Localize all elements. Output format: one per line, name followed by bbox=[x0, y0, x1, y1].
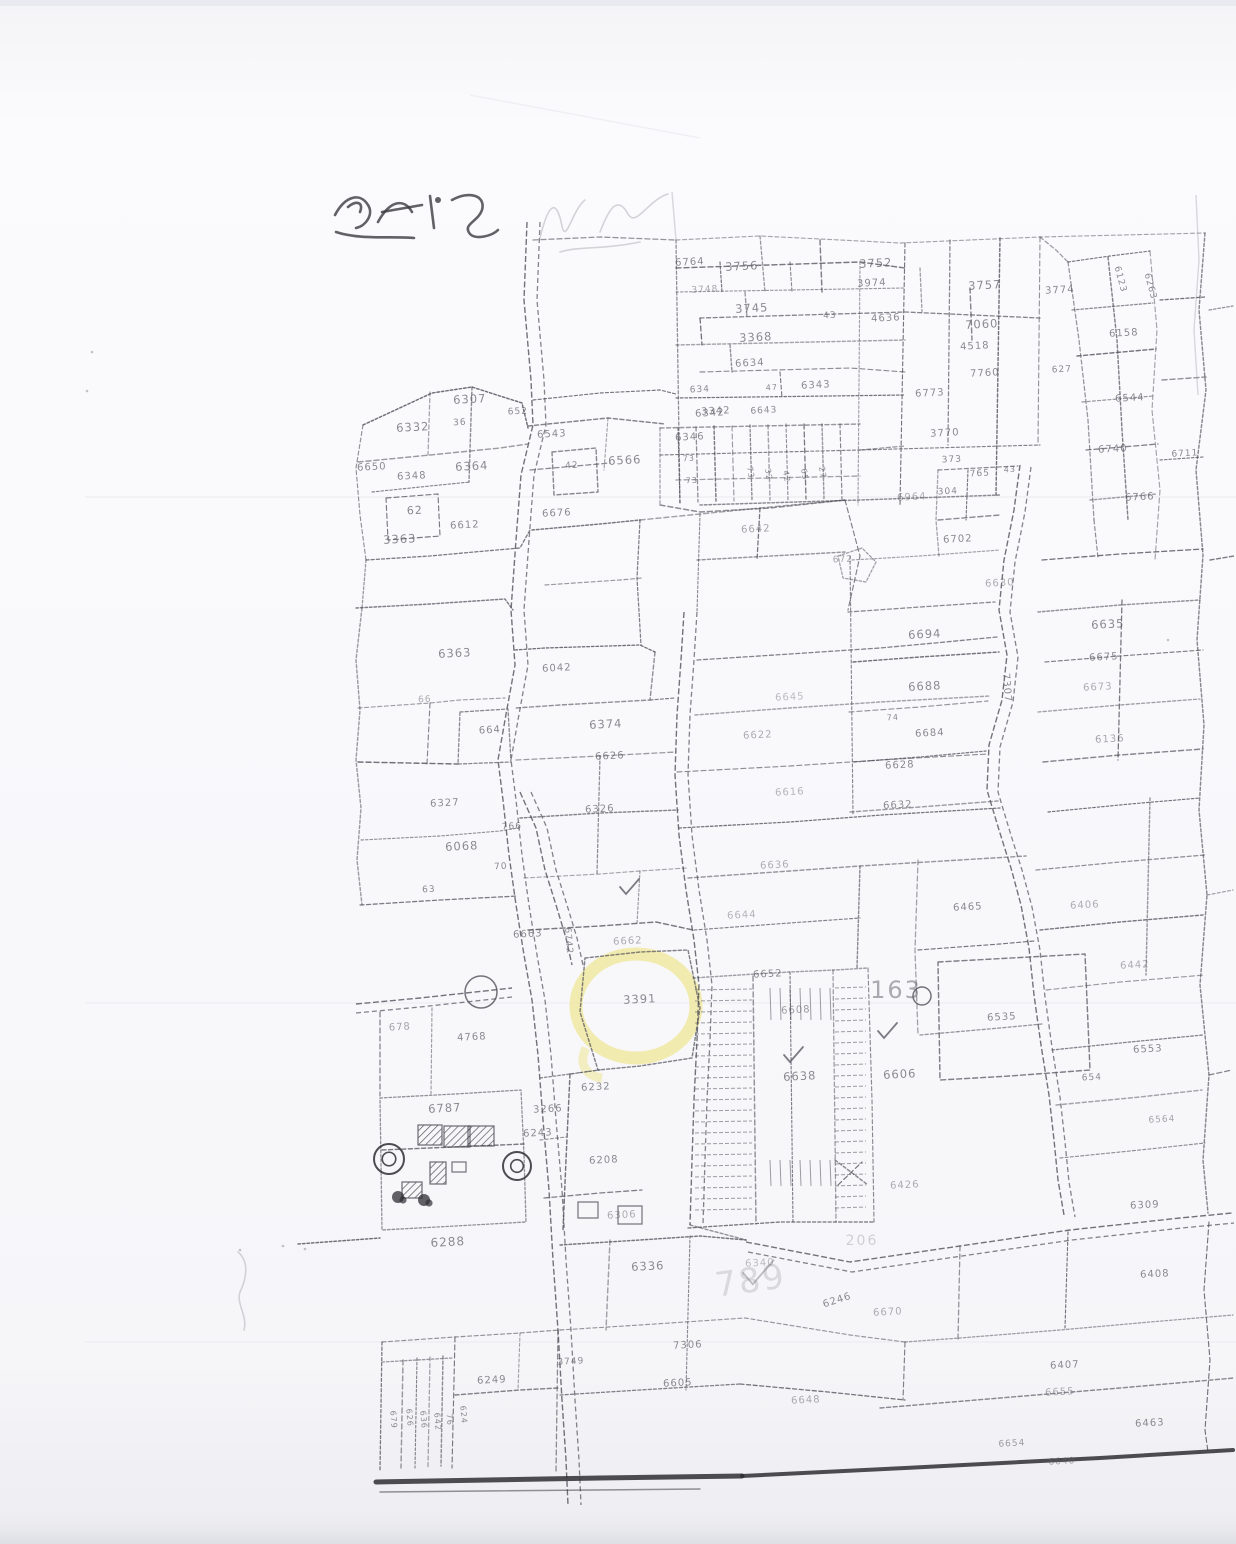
plot-number-label: 6343 bbox=[801, 379, 831, 392]
plot-number-label: 62 bbox=[406, 504, 423, 518]
plot-number-label: 3363 bbox=[383, 531, 417, 547]
plot-number-label: 6606 bbox=[883, 1066, 917, 1082]
plot-number-label: 6332 bbox=[396, 419, 430, 435]
plot-number-label: 6327 bbox=[430, 797, 460, 810]
pencil-number-label: 206 bbox=[846, 1233, 879, 1249]
plot-number-label: 6232 bbox=[581, 1081, 611, 1094]
plot-number-label: 624 bbox=[458, 1405, 469, 1424]
plot-number-label: 36 bbox=[453, 418, 467, 429]
plot-number-label: 6648 bbox=[791, 1394, 821, 1407]
plot-number-label: 654 bbox=[1082, 1072, 1103, 1083]
plot-number-label: 6694 bbox=[908, 626, 942, 642]
plot-number-label: 6208 bbox=[589, 1154, 619, 1167]
plot-number-label: 6673 bbox=[1083, 681, 1113, 694]
plot-number-label: 6442 bbox=[1120, 959, 1150, 972]
hatched-building bbox=[444, 1126, 470, 1147]
plot-number-label: 6535 bbox=[987, 1011, 1017, 1024]
plot-number-label: 6158 bbox=[1109, 327, 1139, 340]
plot-number-label: 634 bbox=[690, 384, 711, 395]
plot-number-label: 6711 bbox=[1171, 448, 1198, 459]
plot-number-label: 3774 bbox=[1045, 284, 1075, 297]
scanned-cadastral-map-page: 6764375637523974375737454346367060377461… bbox=[0, 0, 1236, 1544]
plot-number-label: 6654 bbox=[998, 1438, 1025, 1449]
plot-number-label: 6764 bbox=[675, 256, 705, 269]
plot-number-label: 6632 bbox=[883, 799, 913, 812]
plot-number-label: 3266 bbox=[533, 1103, 563, 1116]
plot-number-label: 6644 bbox=[727, 909, 757, 922]
plot-number-label: 3770 bbox=[930, 427, 960, 440]
scan-speck bbox=[1167, 639, 1170, 642]
plot-number-label: 6640 bbox=[1048, 1456, 1075, 1467]
plot-number-label: 6616 bbox=[775, 786, 805, 799]
plot-number-label: 6374 bbox=[589, 716, 623, 732]
plot-number-label: 6566 bbox=[608, 452, 642, 468]
plot-number-label: 626 bbox=[404, 1408, 415, 1427]
plot-number-label: 6773 bbox=[915, 387, 945, 400]
plot-number-label: 3749 bbox=[557, 1356, 584, 1367]
plot-number-label: 6042 bbox=[542, 662, 572, 675]
sheet-label-dot bbox=[435, 197, 441, 203]
pencil-number-label: 163 bbox=[870, 976, 922, 1004]
tree-blob bbox=[399, 1196, 406, 1203]
hatched-building bbox=[402, 1182, 422, 1198]
plot-number-label: 679 bbox=[388, 1410, 399, 1429]
plot-number-label: 6662 bbox=[613, 935, 643, 948]
plot-number-label: 3752 bbox=[859, 255, 893, 271]
scan-speck bbox=[239, 1249, 242, 1252]
plot-number-label: 6553 bbox=[1133, 1043, 1163, 1056]
plot-number-label: 6650 bbox=[357, 461, 387, 474]
plot-number-label: 6363 bbox=[438, 645, 472, 661]
plot-number-label: 6326 bbox=[585, 803, 615, 816]
plot-number-label: 6342 bbox=[695, 407, 725, 420]
plot-number-label: 6645 bbox=[775, 691, 805, 704]
plot-number-label: 6628 bbox=[885, 759, 915, 772]
plot-number-label: 3974 bbox=[857, 277, 887, 290]
plot-number-label: 6626 bbox=[595, 750, 625, 763]
plot-number-label: 636 bbox=[418, 1410, 429, 1429]
plot-number-label: 6336 bbox=[631, 1258, 665, 1274]
plot-number-label: 76 bbox=[444, 1413, 454, 1426]
plot-number-label: 3368 bbox=[739, 329, 773, 345]
paper-background bbox=[0, 0, 1236, 1544]
plot-number-label: 373 bbox=[942, 454, 963, 465]
plot-number-label: 6675 bbox=[1089, 651, 1119, 664]
scan-speck bbox=[304, 1248, 307, 1251]
plot-number-label: 6288 bbox=[430, 1234, 465, 1250]
plot-number-label: 6635 bbox=[1091, 616, 1125, 632]
plot-number-label: 765 bbox=[970, 468, 991, 479]
plot-number-label: 4768 bbox=[457, 1031, 487, 1044]
plot-number-label: 642 bbox=[432, 1412, 443, 1431]
plot-number-label: 6740 bbox=[1098, 443, 1128, 456]
plot-number-label: 6612 bbox=[450, 519, 480, 532]
plot-number-label: 627 bbox=[1052, 364, 1073, 375]
plot-number-label: 6543 bbox=[537, 428, 567, 441]
plot-number-label: 4518 bbox=[960, 340, 990, 353]
plot-number-label: 73 bbox=[686, 476, 699, 486]
plot-number-label: 6638 bbox=[783, 1068, 817, 1084]
scan-speck bbox=[91, 351, 94, 354]
plot-number-label: 3756 bbox=[725, 258, 759, 274]
plot-number-label: 6643 bbox=[750, 405, 777, 416]
plot-number-label: 6068 bbox=[445, 838, 479, 854]
plot-number-label: 6309 bbox=[1130, 1199, 1160, 1212]
plot-number-label: 6407 bbox=[1050, 1359, 1080, 1372]
plot-number-label: 3748 bbox=[691, 284, 718, 295]
plot-number-label: 6676 bbox=[542, 507, 572, 520]
plot-number-label: 6964 bbox=[897, 491, 927, 504]
plot-number-label: 43 bbox=[823, 311, 837, 322]
scan-speck bbox=[86, 390, 89, 393]
plot-number-label: 6630 bbox=[985, 577, 1015, 590]
cadastral-map-svg: 6764375637523974375737454346367060377461… bbox=[0, 0, 1236, 1544]
plot-number-label: 6608 bbox=[781, 1004, 811, 1017]
tree-blob bbox=[425, 1199, 432, 1206]
plot-number-label: 6655 bbox=[1045, 1386, 1075, 1399]
plot-number-label: 664 bbox=[479, 724, 502, 736]
plot-number-label: 6249 bbox=[477, 1374, 507, 1387]
scan-speck bbox=[282, 1245, 285, 1248]
plot-number-label: 672 bbox=[833, 554, 854, 565]
plot-number-label: 6684 bbox=[915, 727, 945, 740]
plot-number-label: 43 bbox=[1004, 465, 1017, 475]
plot-number-label: 6688 bbox=[908, 678, 942, 694]
plot-number-label: 6766 bbox=[1125, 491, 1155, 504]
plot-number-label: 74 bbox=[887, 713, 900, 723]
plot-number-label: 6564 bbox=[1148, 1114, 1175, 1125]
plot-number-label: 6136 bbox=[1095, 733, 1125, 746]
plot-number-label: 6663 bbox=[513, 928, 543, 941]
plot-number-label: 7306 bbox=[673, 1339, 703, 1352]
plot-number-label: 3757 bbox=[968, 277, 1002, 293]
hatched-building bbox=[418, 1125, 442, 1145]
plot-number-label: 766 bbox=[502, 821, 523, 832]
plot-number-label: 6243 bbox=[523, 1127, 553, 1140]
plot-number-label: 6670 bbox=[873, 1306, 903, 1319]
plot-number-label: 4636 bbox=[871, 312, 901, 325]
plot-number-label: 652 bbox=[508, 406, 529, 417]
plot-number-label: 7760 bbox=[970, 367, 1000, 380]
plot-number-label: 6702 bbox=[943, 533, 973, 546]
plot-number-label: 6622 bbox=[743, 729, 773, 742]
plot-number-label: 6787 bbox=[428, 1100, 462, 1116]
plot-number-label: 7060 bbox=[965, 316, 999, 332]
plot-number-label: 47 bbox=[766, 383, 779, 393]
plot-number-label: 42 bbox=[565, 461, 579, 472]
plot-number-label: 6307 bbox=[453, 391, 487, 407]
plot-number-label: 6634 bbox=[735, 357, 765, 370]
plot-number-label: 6652 bbox=[753, 968, 783, 981]
plot-number-label: 6348 bbox=[397, 470, 427, 483]
plot-number-label: 6544 bbox=[1115, 392, 1145, 405]
plot-number-label: 678 bbox=[389, 1021, 412, 1033]
hatched-building bbox=[468, 1126, 494, 1146]
plot-number-label: 6636 bbox=[760, 859, 790, 872]
plot-number-label: 6406 bbox=[1070, 899, 1100, 912]
plot-number-label: 63 bbox=[422, 885, 436, 896]
plot-number-label: 6408 bbox=[1140, 1268, 1170, 1281]
plot-number-label: 6463 bbox=[1135, 1417, 1165, 1430]
plot-number-label: 70 bbox=[494, 862, 508, 873]
plot-number-label: 6426 bbox=[890, 1179, 920, 1192]
plot-number-label: 3391 bbox=[623, 991, 657, 1007]
plot-number-label: 6306 bbox=[607, 1209, 637, 1222]
plot-number-label: 6346 bbox=[675, 431, 705, 444]
plot-number-label: 6465 bbox=[953, 901, 983, 914]
plot-number-label: 3745 bbox=[735, 300, 769, 316]
plot-number-label: 6642 bbox=[741, 523, 771, 536]
plot-number-label: 66 bbox=[418, 695, 432, 706]
plot-number-label: 6605 bbox=[663, 1377, 693, 1390]
plot-number-label: 73 bbox=[683, 454, 696, 464]
hatched-building bbox=[430, 1162, 446, 1184]
plot-number-label: 6364 bbox=[455, 458, 489, 474]
plot-number-label: 304 bbox=[938, 486, 959, 497]
